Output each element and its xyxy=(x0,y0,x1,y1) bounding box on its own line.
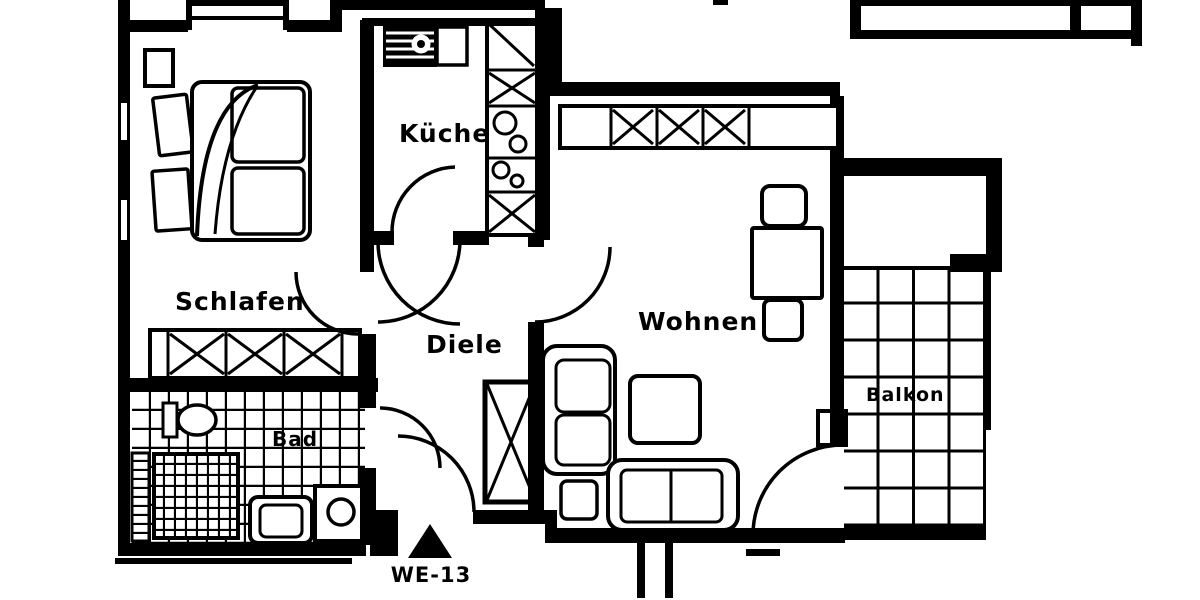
window-left-1 xyxy=(118,103,121,140)
unit-number-label: WE-13 xyxy=(391,563,471,587)
radiator xyxy=(132,453,149,541)
mattress-bottom xyxy=(232,168,304,234)
hob-ring-1 xyxy=(493,162,509,178)
room-label-kueche: Küche xyxy=(399,119,490,148)
desk xyxy=(752,228,822,298)
room-label-bad: Bad xyxy=(272,427,318,451)
toilet-bowl xyxy=(178,405,216,435)
window-strip-wohnen xyxy=(560,106,838,148)
door-arc-hall-2 xyxy=(378,240,460,322)
window-left-2 xyxy=(118,200,121,240)
coffee-table xyxy=(630,376,700,443)
door-arc-bedroom xyxy=(296,272,358,334)
room-label-balkon: Balkon xyxy=(866,384,945,406)
sink-bowl-2 xyxy=(510,136,526,152)
wardrobe-strip xyxy=(150,330,360,378)
washing-machine-door xyxy=(328,499,354,525)
floor-plan-page: Schlafen Küche Diele Wohnen Bad Balkon W… xyxy=(0,0,1200,600)
floor-plan-drawing: Schlafen Küche Diele Wohnen Bad Balkon W… xyxy=(0,0,1200,600)
living-room-furniture xyxy=(543,186,846,530)
room-label-wohnen: Wohnen xyxy=(638,307,758,336)
door-arc-livingroom xyxy=(535,247,610,322)
nightstand-1 xyxy=(153,94,194,156)
room-label-diele: Diele xyxy=(426,330,503,359)
wall-niche xyxy=(145,50,173,86)
hob-ring-2 xyxy=(511,175,523,187)
door-arc-balcony xyxy=(753,445,843,535)
toilet-tank xyxy=(163,403,177,437)
door-arc-kitchen xyxy=(392,167,455,232)
mattress-top xyxy=(232,88,304,162)
desk-chair xyxy=(762,186,806,226)
tv-table xyxy=(764,300,802,340)
entrance-triangle-icon xyxy=(408,524,452,558)
room-label-schlafen: Schlafen xyxy=(175,287,305,316)
sink-bowl-1 xyxy=(494,112,516,134)
unit-marker: WE-13 xyxy=(391,524,471,587)
adjacent-structure xyxy=(713,0,1142,46)
side-table xyxy=(561,481,597,519)
washbasin-bowl xyxy=(260,505,302,537)
window-bedroom-top xyxy=(188,0,287,6)
nightstand-2 xyxy=(152,169,192,231)
shower xyxy=(154,454,238,538)
bedroom-furniture xyxy=(145,50,310,240)
door-arc-entry xyxy=(398,436,474,512)
counter-top xyxy=(437,27,467,65)
